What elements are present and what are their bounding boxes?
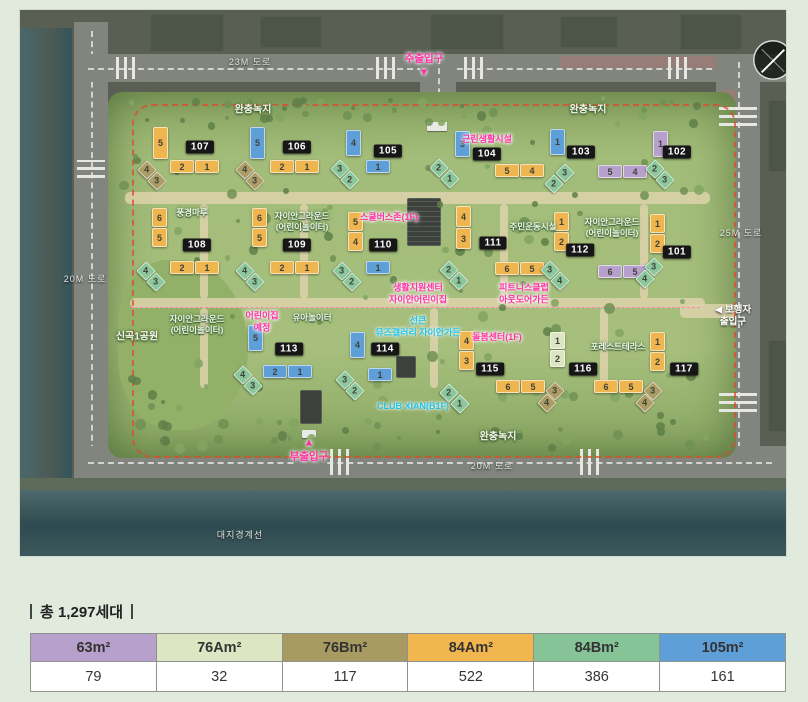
tree bbox=[327, 205, 332, 210]
tree bbox=[208, 122, 216, 130]
tree bbox=[363, 113, 371, 121]
tree bbox=[520, 281, 525, 286]
tree bbox=[425, 118, 433, 126]
unit-block: 1 bbox=[195, 160, 219, 173]
unit-block: 2 bbox=[550, 350, 565, 367]
neighbor-building bbox=[260, 16, 322, 48]
unit-type-header-cell: 84Bm² bbox=[533, 634, 659, 662]
unit-block: 3 bbox=[456, 228, 471, 249]
tree bbox=[613, 430, 623, 440]
unit-type-value-row: 7932117522386161 bbox=[31, 662, 785, 691]
building-number-chip: 117 bbox=[670, 363, 698, 376]
unit-block: 5 bbox=[248, 325, 263, 351]
building-number-chip: 112 bbox=[566, 244, 594, 257]
tree bbox=[194, 359, 203, 368]
unit-block: 5 bbox=[619, 380, 643, 393]
unit-block: 2 bbox=[650, 352, 665, 371]
stream-south bbox=[20, 488, 786, 556]
stream-bank bbox=[20, 478, 786, 490]
unit-block: 4 bbox=[346, 130, 361, 156]
tree bbox=[519, 217, 530, 228]
unit-block: 1 bbox=[650, 332, 665, 351]
tree bbox=[680, 187, 688, 195]
crosswalk bbox=[376, 57, 398, 79]
unit-type-count-cell: 32 bbox=[156, 662, 282, 691]
tree bbox=[145, 118, 149, 122]
total-households-label: 총 1,297세대 bbox=[40, 601, 123, 622]
unit-block: 5 bbox=[521, 380, 545, 393]
crosswalk bbox=[116, 57, 138, 79]
tree bbox=[427, 351, 438, 362]
unit-block: 1 bbox=[366, 261, 390, 274]
unit-type-header-cell: 63m² bbox=[31, 634, 156, 662]
unit-block: 5 bbox=[152, 228, 167, 247]
tree bbox=[532, 201, 538, 207]
unit-block: 4 bbox=[350, 332, 365, 358]
crosswalk bbox=[77, 160, 105, 178]
unit-block: 2 bbox=[263, 365, 287, 378]
building-number-chip: 113 bbox=[275, 343, 303, 356]
tree bbox=[204, 384, 208, 388]
parking-ramp bbox=[300, 390, 322, 424]
building-number-chip: 108 bbox=[183, 239, 211, 252]
tree bbox=[163, 438, 170, 445]
tree bbox=[148, 390, 158, 400]
unit-type-header-cell: 76Bm² bbox=[282, 634, 408, 662]
unit-block: 2 bbox=[270, 160, 294, 173]
unit-type-header-row: 63m²76Am²76Bm²84Am²84Bm²105m² bbox=[31, 634, 785, 662]
tree bbox=[610, 392, 620, 402]
unit-block: 2 bbox=[270, 261, 294, 274]
unit-block: 2 bbox=[170, 160, 194, 173]
tree bbox=[551, 299, 559, 307]
tree bbox=[135, 419, 146, 430]
tree bbox=[437, 201, 443, 207]
building-number-chip: 116 bbox=[569, 363, 597, 376]
facility-building bbox=[396, 356, 416, 378]
tree bbox=[490, 427, 500, 437]
crosswalk bbox=[464, 57, 486, 79]
crosswalk bbox=[668, 57, 690, 79]
neighbor-building bbox=[560, 16, 618, 48]
tree bbox=[689, 119, 697, 127]
building-number-chip: 106 bbox=[283, 141, 311, 154]
tree bbox=[484, 248, 493, 257]
unit-block: 6 bbox=[594, 380, 618, 393]
tree bbox=[418, 98, 427, 107]
unit-block: 1 bbox=[550, 129, 565, 155]
unit-block: 4 bbox=[348, 232, 363, 251]
tree bbox=[133, 154, 138, 159]
unit-block: 1 bbox=[288, 365, 312, 378]
neighbor-building bbox=[768, 340, 786, 432]
tree bbox=[317, 320, 322, 325]
tree bbox=[440, 359, 444, 363]
building-number-chip: 109 bbox=[283, 239, 311, 252]
tree bbox=[680, 299, 685, 304]
neighbor-building bbox=[430, 14, 504, 50]
stream-west bbox=[20, 28, 72, 490]
tree bbox=[499, 304, 505, 310]
neighbor-building bbox=[150, 14, 224, 52]
tree bbox=[307, 434, 317, 444]
unit-block: 5 bbox=[598, 165, 622, 178]
unit-block: 4 bbox=[623, 165, 647, 178]
tree bbox=[657, 412, 663, 418]
title-tick bbox=[131, 604, 133, 619]
tree bbox=[641, 107, 647, 113]
building-number-chip: 105 bbox=[374, 145, 402, 158]
unit-block: 1 bbox=[368, 368, 392, 381]
building-number-chip: 107 bbox=[186, 141, 214, 154]
building-number-chip: 102 bbox=[663, 146, 691, 159]
unit-block: 4 bbox=[459, 331, 474, 350]
building-number-chip: 114 bbox=[371, 343, 399, 356]
unit-type-count-cell: 117 bbox=[282, 662, 408, 691]
tree bbox=[438, 120, 444, 126]
tree bbox=[277, 420, 282, 425]
tree bbox=[227, 189, 237, 199]
tree bbox=[282, 106, 287, 111]
unit-block: 6 bbox=[598, 265, 622, 278]
unit-type-count-cell: 79 bbox=[31, 662, 156, 691]
tree bbox=[224, 100, 232, 108]
tree bbox=[482, 126, 492, 136]
building-number-chip: 103 bbox=[567, 146, 595, 159]
tree bbox=[524, 235, 533, 244]
unit-block: 1 bbox=[195, 261, 219, 274]
tree bbox=[289, 429, 300, 440]
tree bbox=[436, 414, 442, 420]
unit-block: 1 bbox=[366, 160, 390, 173]
unit-type-count-cell: 522 bbox=[407, 662, 533, 691]
tree bbox=[703, 434, 709, 440]
tree bbox=[364, 418, 371, 425]
bus-lane-tint bbox=[560, 56, 716, 68]
tree bbox=[302, 104, 306, 108]
tree bbox=[484, 353, 492, 361]
building-number-chip: 115 bbox=[476, 363, 504, 376]
tree bbox=[129, 100, 134, 105]
tree bbox=[548, 444, 556, 452]
tree bbox=[175, 443, 185, 453]
road-west-20m bbox=[74, 22, 108, 470]
unit-block: 4 bbox=[520, 164, 544, 177]
unit-block: 6 bbox=[496, 380, 520, 393]
building-number-chip: 110 bbox=[369, 239, 397, 252]
unit-block: 6 bbox=[495, 262, 519, 275]
unit-type-count-cell: 161 bbox=[659, 662, 785, 691]
unit-block: 1 bbox=[554, 212, 569, 231]
tree bbox=[351, 106, 355, 110]
unit-block: 4 bbox=[456, 206, 471, 227]
title-tick bbox=[30, 604, 32, 619]
tree bbox=[247, 98, 253, 104]
tree bbox=[461, 113, 467, 119]
unit-block: 1 bbox=[550, 332, 565, 349]
tree bbox=[601, 96, 605, 100]
tree bbox=[619, 224, 627, 232]
total-households: 총 1,297세대 bbox=[30, 601, 133, 622]
tree bbox=[562, 436, 571, 445]
unit-type-header-cell: 84Am² bbox=[407, 634, 533, 662]
tree bbox=[604, 303, 615, 314]
building-number-chip: 111 bbox=[479, 237, 506, 250]
tree bbox=[615, 329, 623, 337]
parking-ramp bbox=[407, 198, 441, 246]
tree bbox=[498, 392, 507, 401]
tree bbox=[477, 111, 487, 121]
unit-block: 6 bbox=[252, 208, 267, 227]
unit-block: 3 bbox=[459, 351, 474, 370]
tree bbox=[343, 111, 352, 120]
compass: N bbox=[753, 40, 786, 80]
tree bbox=[214, 435, 223, 444]
site-plan-page: N 54321107543211064321105321541041325410… bbox=[0, 0, 808, 702]
tree bbox=[569, 392, 578, 401]
tree bbox=[268, 105, 279, 116]
neighbor-building bbox=[768, 100, 786, 172]
tree bbox=[271, 437, 278, 444]
tree bbox=[392, 107, 398, 113]
unit-block: 5 bbox=[495, 164, 519, 177]
unit-type-table: 63m²76Am²76Bm²84Am²84Bm²105m² 7932117522… bbox=[30, 633, 786, 692]
site-plan-map: N 54321107543211064321105321541041325410… bbox=[20, 10, 786, 556]
unit-type-count-cell: 386 bbox=[533, 662, 659, 691]
building-number-chip: 104 bbox=[473, 148, 501, 161]
tree bbox=[225, 255, 231, 261]
tree bbox=[640, 191, 649, 200]
unit-block: 3 bbox=[455, 131, 470, 157]
unit-block: 5 bbox=[252, 228, 267, 247]
unit-block: 1 bbox=[650, 214, 665, 233]
tree bbox=[292, 98, 302, 108]
unit-block: 5 bbox=[348, 212, 363, 231]
building-number-chip: 101 bbox=[663, 246, 691, 259]
tree bbox=[558, 427, 563, 432]
unit-block: 6 bbox=[152, 208, 167, 227]
tree bbox=[460, 104, 464, 108]
unit-block: 1 bbox=[295, 261, 319, 274]
tree bbox=[363, 295, 368, 300]
unit-block: 5 bbox=[250, 127, 265, 159]
tree bbox=[478, 311, 489, 322]
unit-block: 1 bbox=[295, 160, 319, 173]
unit-block: 2 bbox=[170, 261, 194, 274]
unit-block: 5 bbox=[153, 127, 168, 159]
neighbor-building bbox=[680, 14, 742, 50]
unit-type-header-cell: 105m² bbox=[659, 634, 785, 662]
tree bbox=[572, 192, 578, 198]
unit-type-header-cell: 76Am² bbox=[156, 634, 282, 662]
